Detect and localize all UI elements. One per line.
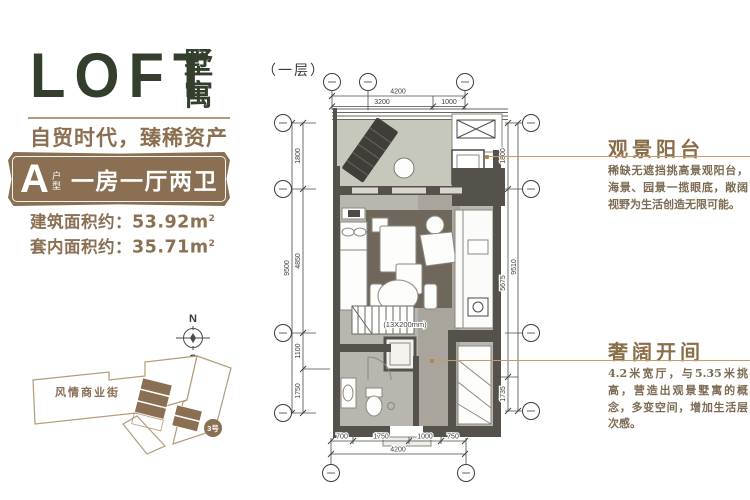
unit-type-badge: A 户型 一房一厅两卫 bbox=[8, 152, 230, 206]
leader-dot-balcony bbox=[485, 155, 489, 159]
svg-text:700: 700 bbox=[336, 434, 348, 441]
toilet bbox=[366, 396, 382, 416]
built-area-row: 建筑面积约：53.92m2 bbox=[30, 209, 215, 234]
svg-text:4200: 4200 bbox=[390, 89, 406, 96]
svg-text:1750: 1750 bbox=[295, 383, 302, 399]
logo-loft: LOFT bbox=[30, 42, 180, 111]
bed bbox=[340, 208, 367, 310]
leader-line-openplan bbox=[432, 360, 750, 361]
kitchen-counter bbox=[455, 210, 493, 328]
unit-small-label: 户型 bbox=[52, 171, 63, 191]
built-area-value: 53.92 bbox=[132, 213, 190, 233]
svg-text:1000: 1000 bbox=[441, 99, 457, 106]
logo-suffix: 墅寓 bbox=[184, 47, 218, 111]
stair-note: (13X200mm) bbox=[383, 320, 427, 329]
svg-text:9500: 9500 bbox=[284, 260, 291, 276]
unit-letter: A bbox=[20, 159, 49, 199]
equipment-platform bbox=[452, 114, 502, 152]
callout-balcony-title: 观景阳台 bbox=[608, 133, 748, 162]
balcony-table bbox=[394, 158, 414, 178]
callout-openplan-body: 4.2米宽厅，与5.35米挑高，营造出观景墅寓的概念，多变空间，增加生活层次感。 bbox=[608, 366, 748, 433]
svg-text:1735: 1735 bbox=[500, 386, 507, 402]
building-number-marker: 3号 bbox=[204, 419, 222, 437]
site-map-outline bbox=[33, 356, 231, 454]
leader-line-balcony bbox=[487, 156, 750, 157]
leader-dot-openplan bbox=[430, 359, 434, 363]
tagline: 自贸时代，臻稀资产 bbox=[24, 122, 234, 152]
svg-text:9510: 9510 bbox=[511, 259, 518, 275]
site-map: 风情商业街 3号 bbox=[25, 350, 235, 465]
closet-bath bbox=[458, 346, 491, 424]
unit-title: 一房一厅两卫 bbox=[71, 162, 218, 196]
built-area-label: 建筑面积约： bbox=[30, 213, 132, 232]
callout-balcony-body: 稀缺无遮挡挑高景观阳台，海景、园景一揽眼底，敞阔视野为生活创造无限可能。 bbox=[608, 163, 748, 213]
area-figures: 建筑面积约：53.92m2 套内面积约：35.71m2 bbox=[30, 209, 215, 258]
svg-text:1000: 1000 bbox=[417, 434, 433, 441]
svg-text:1800: 1800 bbox=[295, 148, 302, 164]
inner-area-value: 35.71 bbox=[132, 237, 190, 257]
svg-text:4850: 4850 bbox=[295, 253, 302, 269]
brochure-canvas: LOFT 墅寓 自贸时代，臻稀资产 A 户型 一房一厅两卫 建筑面积约：53.9… bbox=[0, 0, 750, 500]
svg-text:5675: 5675 bbox=[500, 275, 507, 291]
svg-text:4200: 4200 bbox=[390, 447, 406, 454]
tagline-divider bbox=[28, 117, 230, 119]
inner-area-label: 套内面积约： bbox=[30, 237, 132, 256]
building-number-label: 3号 bbox=[207, 424, 219, 433]
street-label: 风情商业街 bbox=[55, 385, 120, 399]
side-table bbox=[426, 216, 444, 234]
lounge-armchair bbox=[420, 232, 456, 266]
svg-text:1750: 1750 bbox=[373, 434, 389, 441]
svg-text:1100: 1100 bbox=[295, 343, 302, 358]
compass-north-label: N bbox=[189, 313, 197, 325]
svg-text:750: 750 bbox=[447, 434, 459, 441]
floor-plan: (13X200mm) bbox=[255, 55, 555, 500]
windows bbox=[352, 188, 462, 194]
inner-area-row: 套内面积约：35.71m2 bbox=[30, 234, 215, 259]
svg-text:3200: 3200 bbox=[374, 99, 390, 106]
compass-rose-icon bbox=[176, 326, 210, 350]
